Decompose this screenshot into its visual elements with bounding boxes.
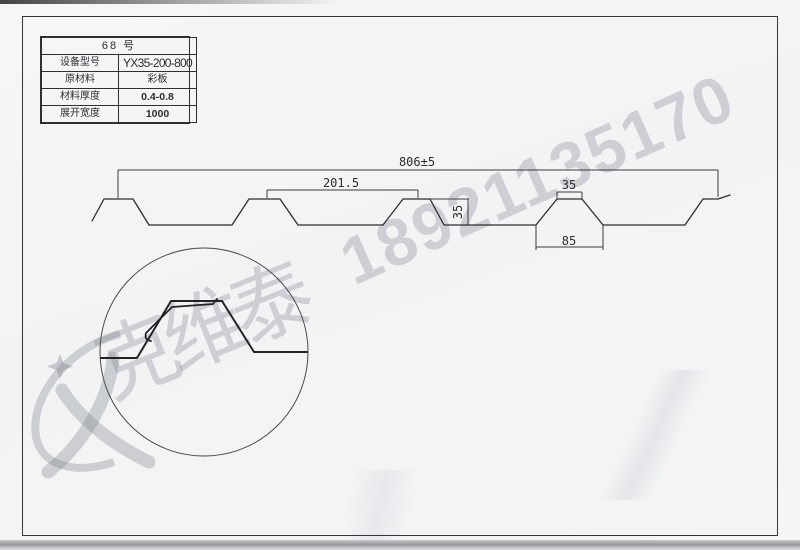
dim-overall-width-text: 806±5 <box>399 155 435 169</box>
detail-overlap-sheet-edge-line <box>146 299 217 341</box>
sheet-profile-outline <box>92 195 730 225</box>
detail-view-overlap-joint <box>100 248 308 456</box>
dim-pitch-lines <box>267 190 418 198</box>
profile-drawing: 806±5 201.5 35 35 85 <box>0 0 800 550</box>
dim-rib-top-width-text: 35 <box>562 178 576 192</box>
dim-pitch-text: 201.5 <box>323 176 359 190</box>
dim-rib-height: 35 <box>430 199 469 225</box>
dim-rib-top-width: 35 <box>557 178 582 199</box>
dim-rib-bottom-width: 85 <box>536 225 603 250</box>
dim-rib-top-width-lines <box>557 192 582 199</box>
detail-sheet-profile-line <box>101 301 307 358</box>
dim-pitch: 201.5 <box>267 176 418 198</box>
dim-rib-height-text: 35 <box>451 205 465 219</box>
dim-rib-bottom-width-text: 85 <box>562 234 576 248</box>
